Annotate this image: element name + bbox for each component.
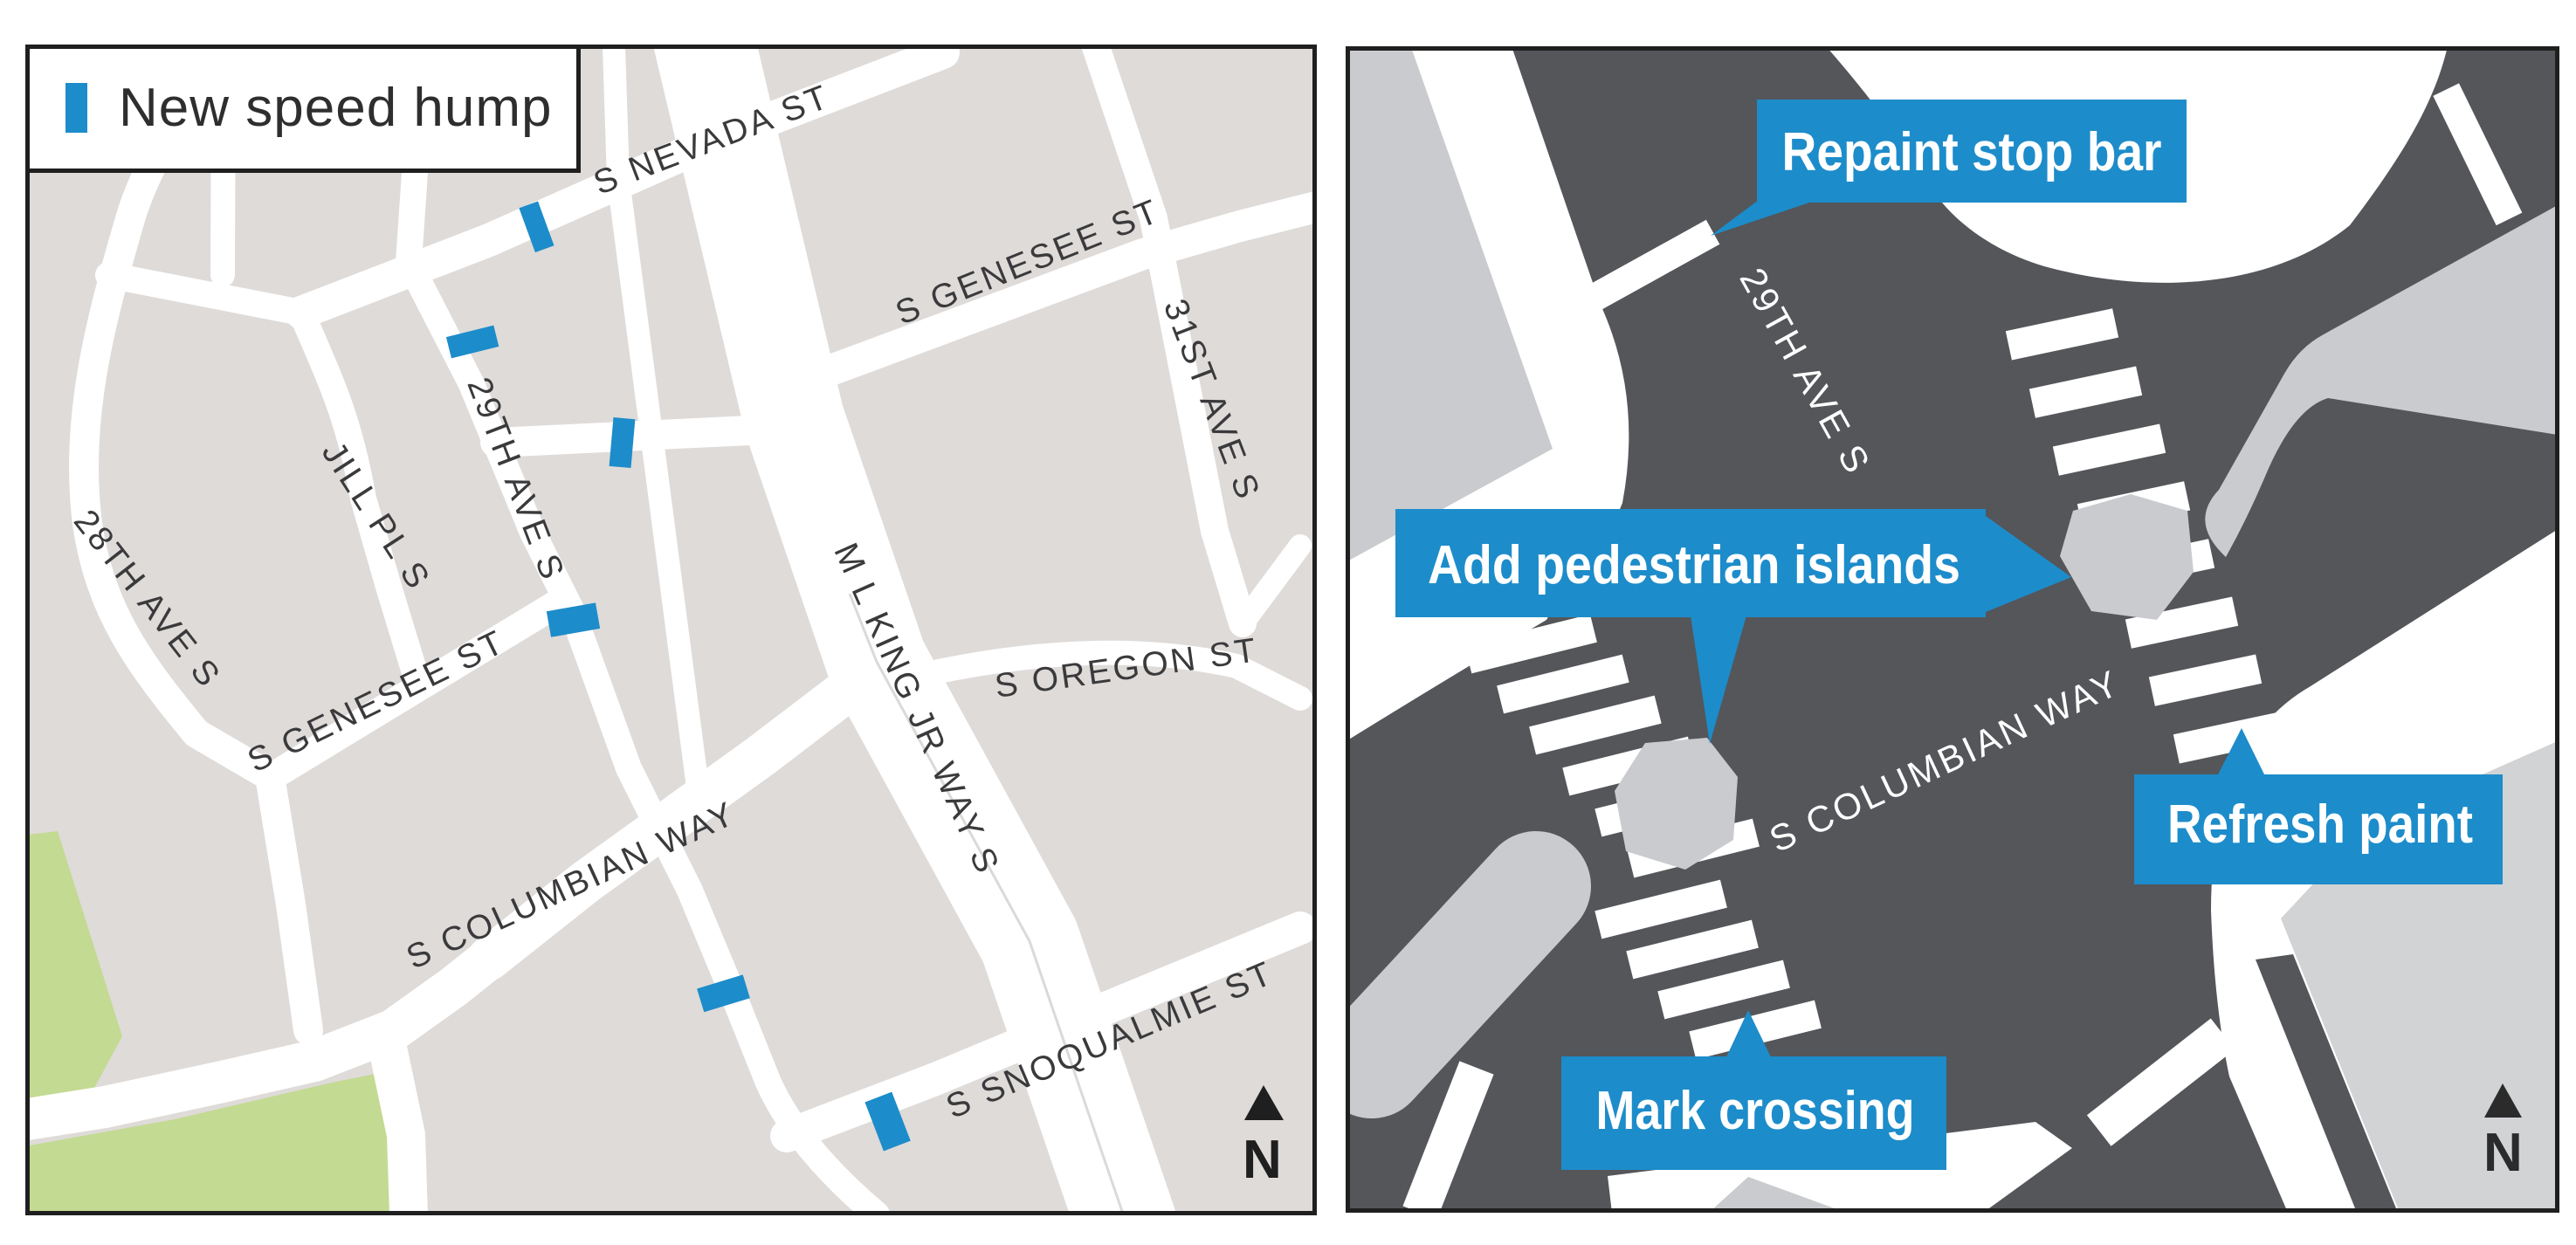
svg-text:Repaint stop bar: Repaint stop bar xyxy=(1782,122,2162,182)
svg-text:Add pedestrian islands: Add pedestrian islands xyxy=(1428,535,1960,595)
svg-text:N: N xyxy=(2483,1123,2523,1183)
svg-text:N: N xyxy=(1243,1130,1282,1190)
svg-text:Mark crossing: Mark crossing xyxy=(1596,1081,1915,1141)
svg-text:New speed hump: New speed hump xyxy=(119,78,553,138)
svg-text:Refresh paint: Refresh paint xyxy=(2167,794,2473,855)
